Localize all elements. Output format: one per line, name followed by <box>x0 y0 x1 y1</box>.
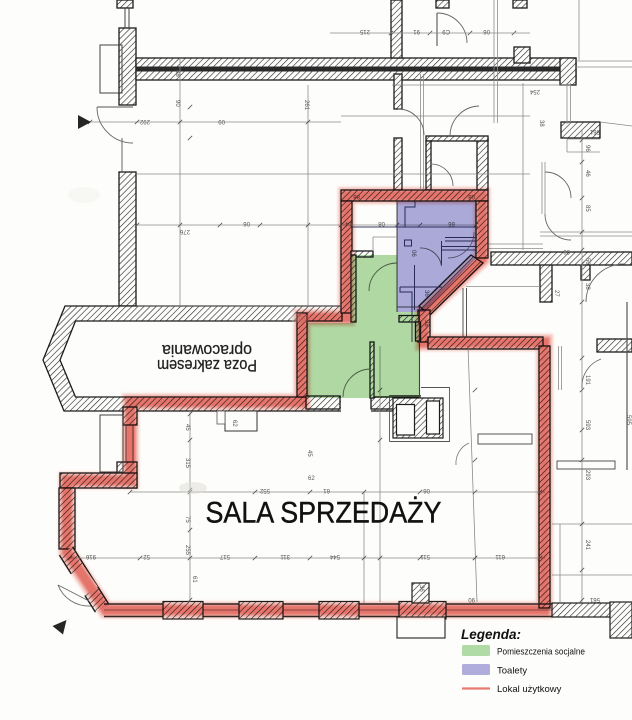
svg-text:C9: C9 <box>442 28 450 34</box>
svg-text:916: 916 <box>85 553 96 559</box>
svg-text:50: 50 <box>584 258 590 265</box>
svg-text:45: 45 <box>184 424 190 431</box>
svg-text:06: 06 <box>243 220 250 226</box>
svg-text:75: 75 <box>184 516 190 523</box>
svg-text:90: 90 <box>468 596 475 602</box>
svg-text:46: 46 <box>584 170 590 177</box>
svg-text:62: 62 <box>231 420 237 427</box>
svg-text:90: 90 <box>174 100 180 107</box>
svg-text:45: 45 <box>306 450 312 457</box>
svg-text:36: 36 <box>418 585 424 592</box>
svg-text:08: 08 <box>378 220 385 226</box>
svg-text:241: 241 <box>584 540 590 551</box>
svg-text:261: 261 <box>303 100 309 111</box>
svg-text:06: 06 <box>483 28 490 34</box>
svg-text:38: 38 <box>538 120 544 127</box>
svg-text:544: 544 <box>329 553 340 559</box>
svg-text:215: 215 <box>359 28 370 34</box>
svg-text:517: 517 <box>219 553 230 559</box>
svg-text:08: 08 <box>174 70 180 77</box>
svg-text:Toalety: Toalety <box>497 666 527 677</box>
svg-text:Pomieszczenia socjalne: Pomieszczenia socjalne <box>497 647 585 658</box>
svg-text:552: 552 <box>259 487 270 493</box>
svg-text:511: 511 <box>420 553 430 559</box>
svg-text:61: 61 <box>323 487 330 493</box>
svg-text:SALA SPRZEDAŻY: SALA SPRZEDAŻY <box>206 497 442 530</box>
svg-text:311: 311 <box>280 553 290 559</box>
svg-text:315: 315 <box>184 458 190 469</box>
svg-text:96: 96 <box>584 145 590 152</box>
svg-text:27: 27 <box>553 290 559 297</box>
svg-text:61: 61 <box>191 576 197 583</box>
svg-text:91: 91 <box>413 28 420 34</box>
svg-text:292: 292 <box>139 118 150 124</box>
svg-text:85: 85 <box>584 205 590 212</box>
svg-text:611: 611 <box>495 553 505 559</box>
svg-text:595: 595 <box>625 415 631 426</box>
svg-text:293: 293 <box>584 470 590 481</box>
svg-text:561: 561 <box>589 128 600 134</box>
svg-text:561: 561 <box>589 596 600 602</box>
svg-text:276: 276 <box>179 228 190 234</box>
svg-text:Lokal użytkowy: Lokal użytkowy <box>497 684 562 695</box>
svg-text:52: 52 <box>143 553 150 559</box>
svg-text:99: 99 <box>563 248 570 254</box>
svg-text:Legenda:: Legenda: <box>461 627 521 642</box>
svg-text:255: 255 <box>184 545 190 556</box>
svg-text:593: 593 <box>584 420 590 431</box>
svg-text:06: 06 <box>423 487 430 493</box>
svg-text:09: 09 <box>218 118 225 124</box>
svg-text:62: 62 <box>308 476 315 482</box>
svg-text:opracowania: opracowania <box>161 341 252 360</box>
svg-text:191: 191 <box>584 375 590 386</box>
svg-text:38: 38 <box>584 283 590 290</box>
svg-text:254: 254 <box>529 88 540 94</box>
